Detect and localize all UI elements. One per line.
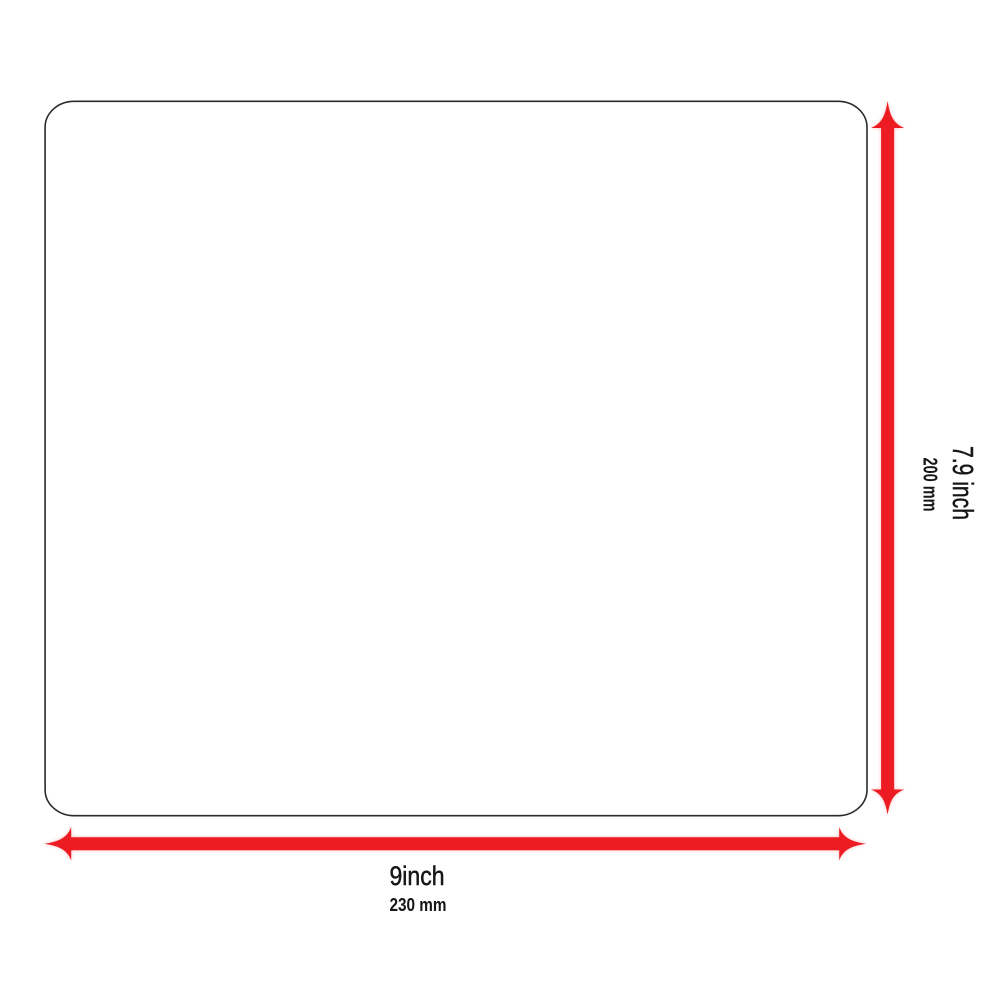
svg-text:200 mm: 200 mm	[919, 458, 941, 512]
svg-text:9inch: 9inch	[390, 861, 445, 891]
svg-text:230 mm: 230 mm	[390, 894, 447, 915]
svg-text:7.9 inch: 7.9 inch	[946, 446, 978, 520]
